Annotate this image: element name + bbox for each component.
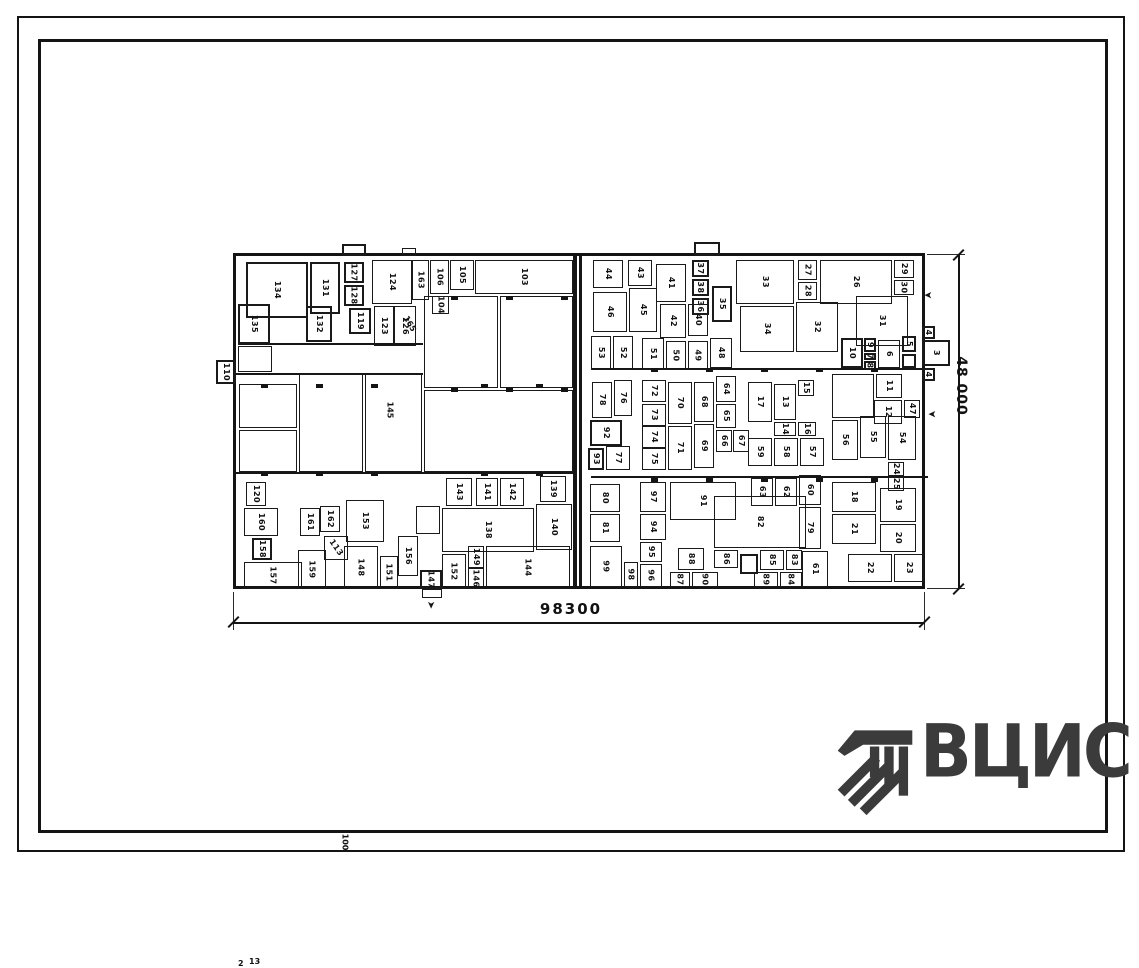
- room-number: 159: [294, 557, 331, 583]
- room-number: 61: [798, 557, 832, 581]
- plan-annotation-100: 100: [340, 834, 348, 851]
- room-52: 52: [613, 336, 633, 370]
- column-mark: [651, 368, 658, 372]
- column-mark: [451, 388, 458, 392]
- plan-annotation-2: 2: [238, 960, 244, 968]
- column-mark: [316, 472, 323, 476]
- room-97: 97: [640, 482, 666, 512]
- room-13: 13: [774, 384, 796, 420]
- room-38: 38: [692, 279, 709, 296]
- room-number: 57: [799, 441, 825, 463]
- room: [365, 374, 422, 472]
- room-number: 41: [653, 269, 689, 297]
- room-85: 85: [760, 550, 784, 570]
- room-16: 16: [798, 422, 816, 436]
- bottom-dimension-line: [233, 622, 925, 624]
- room-number: 80: [592, 484, 618, 512]
- room-number: 96: [641, 566, 662, 586]
- room-62: 62: [775, 478, 797, 506]
- room-number: 4: [924, 370, 933, 379]
- room-37: 37: [692, 260, 709, 277]
- room-89: 89: [754, 572, 778, 587]
- room-number: 81: [592, 514, 618, 542]
- room: [424, 296, 498, 388]
- room: [902, 354, 916, 368]
- column-mark: [561, 296, 568, 300]
- room-146: 146: [468, 568, 484, 589]
- column-mark: [371, 472, 378, 476]
- room: [694, 242, 720, 256]
- room-number: 54: [881, 425, 923, 451]
- column-mark: [761, 478, 768, 482]
- room-152: 152: [442, 554, 466, 589]
- room-29: 29: [894, 260, 914, 278]
- column-mark: [481, 384, 488, 388]
- room-5: 5: [902, 336, 916, 352]
- room-number: 5: [903, 339, 915, 349]
- room-64: 64: [716, 376, 736, 402]
- room-35: 35: [712, 286, 732, 322]
- column-mark: [261, 472, 268, 476]
- room-number: 20: [885, 521, 911, 555]
- room-number: 11: [878, 374, 900, 398]
- room-110: 110: [216, 360, 236, 384]
- room-number: 162: [318, 510, 342, 528]
- room-number: 120: [245, 485, 267, 503]
- room-49: 49: [688, 341, 708, 370]
- room-6: 6: [878, 340, 900, 368]
- column-mark: [706, 368, 713, 372]
- column-mark: [371, 384, 378, 388]
- room-number: 60: [796, 480, 824, 500]
- scanned-drawing-page: { "dimensions": { "width_label": "98300"…: [0, 0, 1139, 869]
- room-57: 57: [800, 438, 824, 466]
- room-22: 22: [848, 554, 892, 582]
- room: [299, 374, 363, 472]
- room-number: 65: [715, 407, 737, 425]
- room-number: 94: [641, 515, 665, 539]
- room-number: 12: [877, 399, 899, 425]
- column-mark: [816, 368, 823, 372]
- column-mark: [506, 388, 513, 392]
- bottom-dimension-label: 98300: [531, 602, 611, 617]
- room-number: 6: [876, 344, 902, 364]
- column-mark: [816, 478, 823, 482]
- room-51: 51: [642, 338, 664, 370]
- column-mark: [871, 368, 878, 372]
- room-120: 120: [246, 482, 266, 506]
- room-number: 95: [642, 542, 660, 562]
- room-number: 147: [424, 571, 439, 589]
- column-mark: [561, 388, 568, 392]
- room-19: 19: [880, 488, 916, 522]
- room-number: 127: [346, 265, 363, 281]
- room-66: 66: [716, 430, 732, 452]
- room-28: 28: [798, 282, 817, 300]
- room-162: 162: [320, 506, 340, 532]
- room-92: 92: [590, 420, 622, 446]
- room-40: 40: [688, 304, 708, 336]
- room-number: 92: [595, 419, 617, 447]
- column-mark: [261, 384, 268, 388]
- room-68: 68: [694, 382, 714, 422]
- column-mark: [451, 296, 458, 300]
- room-number: 40: [683, 311, 713, 329]
- room-number: 23: [896, 554, 922, 582]
- room-32: 32: [796, 302, 838, 352]
- room-27: 27: [798, 260, 817, 280]
- room-77: 77: [606, 446, 630, 470]
- room-14: 14: [774, 422, 796, 436]
- room-44: 44: [593, 260, 623, 288]
- dimension-extension-line: [233, 592, 234, 630]
- room-3: 3: [922, 340, 950, 366]
- column-mark: [651, 478, 658, 482]
- room-61: 61: [802, 551, 828, 587]
- room-144: 144: [486, 546, 570, 589]
- room-number: 128: [346, 288, 363, 304]
- room-number: 35: [706, 296, 738, 312]
- room-number: 28: [800, 283, 816, 300]
- room-number: 63: [749, 482, 775, 502]
- room-50: 50: [666, 341, 686, 370]
- room-number: 13: [768, 392, 802, 412]
- room-103: 103: [475, 260, 573, 294]
- room-45: 45: [629, 288, 657, 332]
- room: [500, 296, 573, 388]
- room-99: 99: [590, 546, 622, 587]
- room-47: 47: [904, 400, 920, 418]
- room-number: 4: [924, 328, 933, 337]
- room-number: 7: [869, 353, 872, 361]
- room-number: 33: [744, 254, 786, 310]
- room-number: 27: [799, 262, 817, 279]
- room-127: 127: [344, 262, 364, 283]
- room-135: 135: [238, 304, 270, 344]
- room-number: 79: [790, 518, 830, 538]
- room-23: 23: [894, 554, 924, 582]
- room-number: 139: [541, 477, 565, 501]
- room-156: 156: [398, 536, 418, 576]
- room-139: 139: [540, 476, 566, 502]
- room-159: 159: [298, 550, 326, 589]
- entrance-arrow-icon: ➤: [924, 289, 932, 299]
- room-number: 9: [865, 341, 875, 349]
- room-106: 106: [430, 260, 449, 294]
- room-11: 11: [876, 374, 902, 398]
- room-86: 86: [714, 550, 738, 568]
- room-number: 48: [707, 343, 735, 363]
- room: [416, 506, 440, 534]
- room-number: 34: [745, 303, 789, 355]
- room-number: 149: [466, 550, 486, 564]
- room-number: 59: [747, 441, 773, 463]
- room-number: 25: [890, 477, 902, 491]
- room-number: 29: [896, 260, 912, 278]
- room-number: 86: [718, 548, 734, 570]
- room: [239, 384, 297, 428]
- room-number: 146: [467, 572, 486, 586]
- room-93: 93: [588, 448, 604, 470]
- room-153: 153: [346, 500, 384, 542]
- room-4: 4: [922, 326, 935, 339]
- room-number: 3: [925, 341, 947, 365]
- room-33: 33: [736, 260, 794, 304]
- room-number: 24: [890, 462, 902, 476]
- room-7: 7: [864, 353, 876, 360]
- column-mark: [761, 368, 768, 372]
- room-79: 79: [799, 507, 821, 549]
- room-30: 30: [894, 280, 914, 295]
- room-10: 10: [841, 338, 863, 368]
- plan-annotation-145: 145: [385, 402, 393, 419]
- room-number: 93: [587, 453, 605, 465]
- room-105: 105: [450, 260, 474, 290]
- plan-annotation-13: 13: [249, 958, 260, 966]
- wall-segment: [236, 472, 573, 474]
- room: [239, 430, 297, 472]
- room-number: 110: [216, 364, 236, 380]
- room-number: 15: [799, 381, 813, 395]
- room-58: 58: [774, 438, 798, 466]
- room-number: 14: [779, 419, 791, 439]
- room-34: 34: [740, 306, 794, 352]
- right-dimension-line: [958, 255, 960, 589]
- column-mark: [481, 472, 488, 476]
- room-number: 43: [628, 262, 652, 284]
- room-number: 105: [448, 264, 476, 286]
- room-number: 156: [389, 547, 427, 565]
- room-15: 15: [798, 380, 814, 396]
- room-128: 128: [344, 285, 364, 306]
- room-number: 97: [639, 485, 667, 509]
- column-mark: [316, 384, 323, 388]
- room: [832, 374, 874, 418]
- room-number: 77: [607, 447, 629, 469]
- room-4: 4: [922, 368, 935, 381]
- room-number: 153: [345, 503, 385, 539]
- room-25: 25: [888, 477, 904, 491]
- right-dimension-label: 48 000: [952, 354, 968, 418]
- room-number: 87: [674, 571, 687, 589]
- room-number: 32: [793, 307, 841, 347]
- room: [238, 346, 272, 372]
- room-96: 96: [640, 564, 662, 587]
- room: [402, 248, 416, 256]
- room-number: 89: [760, 569, 773, 591]
- room-number: 52: [607, 344, 639, 362]
- room-number: 90: [699, 568, 712, 592]
- room-number: 131: [301, 275, 349, 301]
- room-94: 94: [640, 514, 666, 540]
- room-59: 59: [748, 438, 772, 466]
- room-80: 80: [590, 484, 620, 512]
- room-number: 44: [595, 260, 621, 288]
- room-69: 69: [694, 424, 714, 468]
- room-number: 160: [248, 506, 274, 538]
- column-mark: [871, 478, 878, 482]
- vcis-logo: ВЦИС: [836, 716, 1130, 816]
- room: [424, 390, 573, 472]
- room-21: 21: [832, 514, 876, 544]
- entrance-arrow-icon: ➤: [928, 408, 936, 418]
- vcis-logo-emblem: [836, 716, 914, 816]
- floor-plan: 1341311351321271281191241231261631061041…: [233, 253, 925, 589]
- room-number: 64: [714, 380, 738, 398]
- room-90: 90: [692, 572, 718, 587]
- room-number: 84: [785, 570, 798, 590]
- room: [342, 244, 366, 256]
- column-mark: [506, 296, 513, 300]
- room-95: 95: [640, 542, 662, 562]
- room-number: 76: [606, 390, 640, 406]
- room-number: 47: [904, 402, 920, 416]
- vcis-logo-text: ВЦИС: [920, 716, 1130, 789]
- room-81: 81: [590, 514, 620, 542]
- room-63: 63: [751, 478, 773, 506]
- column-mark: [536, 472, 543, 476]
- column-mark: [536, 384, 543, 388]
- room-43: 43: [628, 260, 652, 286]
- room-number: 10: [839, 344, 865, 362]
- wall-segment: [579, 256, 582, 586]
- room-number: 22: [857, 547, 883, 589]
- room-24: 24: [888, 462, 904, 476]
- room-number: 38: [694, 281, 707, 294]
- room-98: 98: [624, 562, 638, 587]
- room-149: 149: [468, 546, 484, 568]
- room-number: 58: [773, 441, 799, 463]
- room-48: 48: [710, 338, 732, 368]
- room: [740, 554, 758, 574]
- room-76: 76: [614, 380, 632, 416]
- room-number: 16: [801, 421, 813, 437]
- room-number: 132: [303, 313, 335, 335]
- entrance-arrow-icon: ➤: [425, 601, 435, 609]
- room-number: 157: [261, 548, 286, 604]
- dimension-extension-line: [924, 592, 925, 630]
- room-160: 160: [244, 508, 278, 536]
- room-9: 9: [864, 338, 876, 352]
- room-87: 87: [670, 572, 690, 587]
- room-161: 161: [300, 508, 320, 536]
- room-number: 30: [898, 279, 911, 297]
- room-number: 144: [508, 527, 549, 609]
- room-number: 19: [882, 488, 914, 522]
- room-number: 135: [236, 310, 272, 338]
- room-number: 21: [840, 508, 868, 550]
- room-65: 65: [716, 404, 736, 428]
- room-12: 12: [874, 400, 902, 424]
- room: [422, 589, 442, 598]
- room-132: 132: [306, 306, 332, 342]
- column-mark: [706, 478, 713, 482]
- room-number: 37: [694, 262, 707, 275]
- room-20: 20: [880, 524, 916, 552]
